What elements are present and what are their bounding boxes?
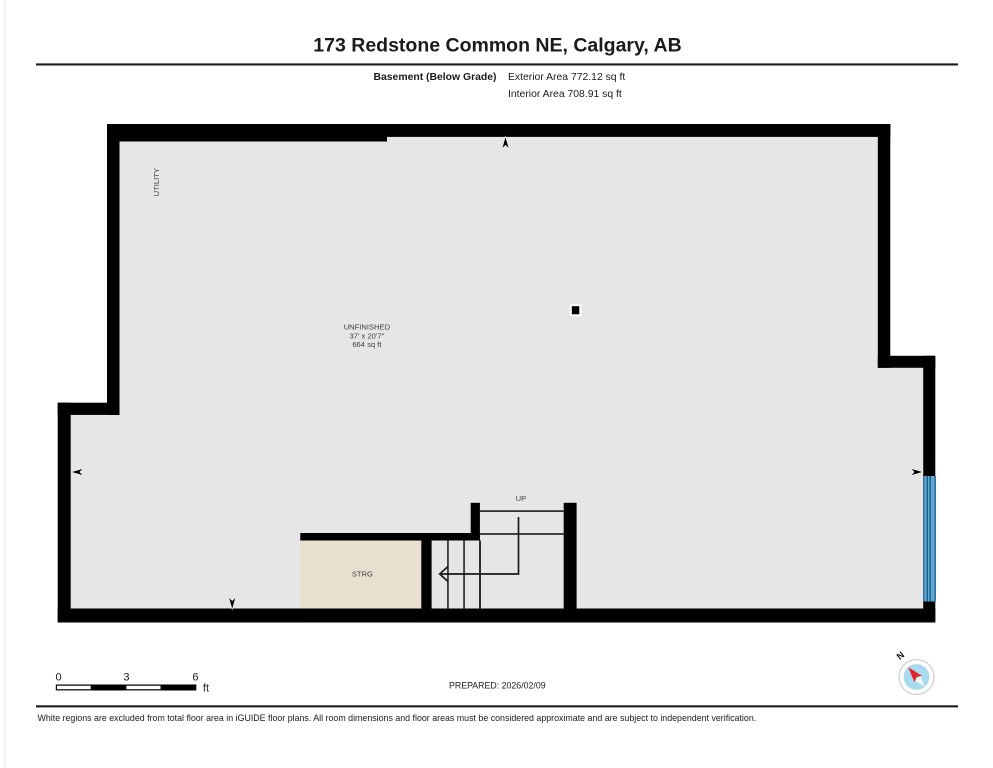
svg-text:173 Redstone Common NE, Calgar: 173 Redstone Common NE, Calgary, AB bbox=[313, 34, 681, 56]
svg-text:664 sq ft: 664 sq ft bbox=[352, 340, 382, 349]
svg-text:White regions are excluded fro: White regions are excluded from total fl… bbox=[38, 713, 757, 723]
svg-text:STRG: STRG bbox=[352, 570, 373, 579]
svg-text:N: N bbox=[895, 650, 907, 662]
svg-text:UNFINISHED: UNFINISHED bbox=[344, 322, 391, 331]
svg-text:ft: ft bbox=[203, 683, 209, 695]
svg-text:3: 3 bbox=[123, 672, 129, 684]
svg-text:Exterior Area 772.12 sq ft: Exterior Area 772.12 sq ft bbox=[508, 72, 625, 83]
svg-text:6: 6 bbox=[192, 672, 198, 684]
svg-text:PREPARED: 2026/02/09: PREPARED: 2026/02/09 bbox=[449, 681, 546, 691]
svg-text:0: 0 bbox=[56, 672, 62, 684]
svg-text:Basement (Below Grade): Basement (Below Grade) bbox=[374, 72, 497, 83]
svg-text:Interior Area 708.91 sq ft: Interior Area 708.91 sq ft bbox=[508, 89, 622, 100]
svg-text:UP: UP bbox=[516, 494, 527, 503]
svg-text:UTILITY: UTILITY bbox=[152, 168, 161, 196]
